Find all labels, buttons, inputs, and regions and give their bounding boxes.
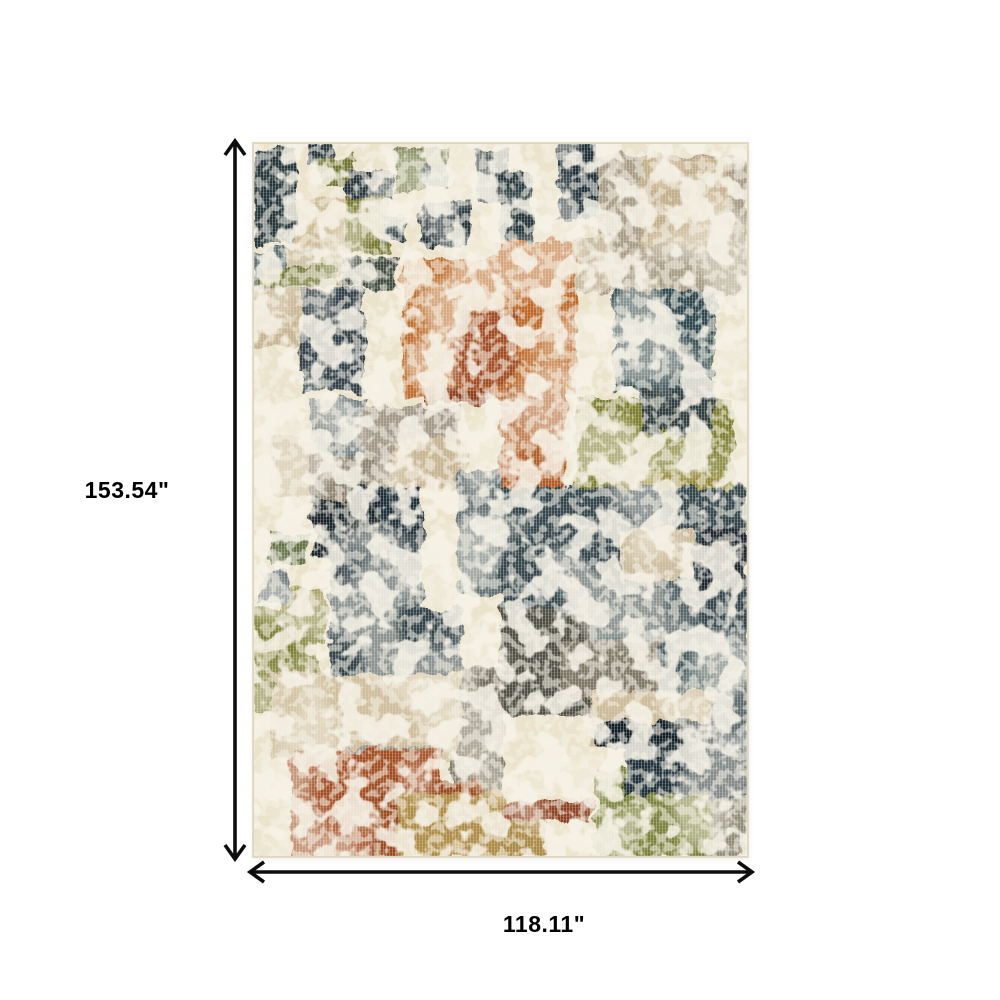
product-dimension-image: 153.54" 118.11": [0, 0, 1000, 1000]
width-dimension-label: 118.11": [444, 911, 644, 938]
width-dimension-arrow: [243, 856, 759, 888]
height-dimension-arrow: [219, 132, 251, 868]
height-dimension-label: 153.54": [52, 477, 202, 504]
rug-pattern: [253, 143, 748, 857]
rug-image: [253, 143, 748, 857]
